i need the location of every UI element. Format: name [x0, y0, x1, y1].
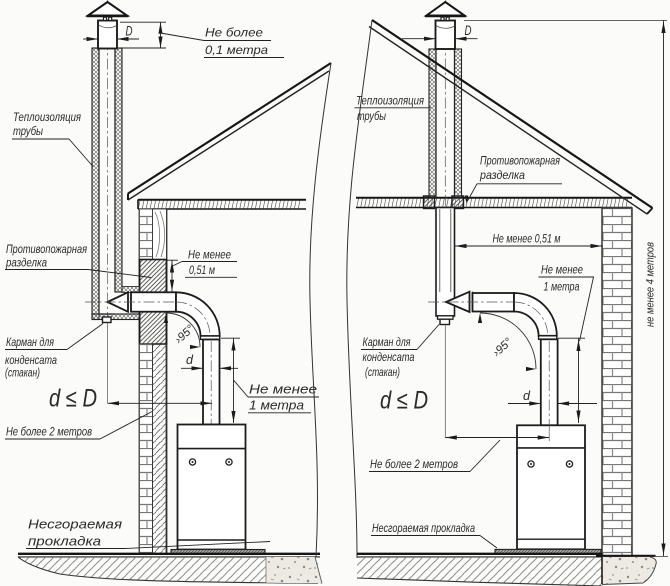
svg-text:D: D [126, 24, 133, 39]
svg-text:прокладка: прокладка [28, 534, 101, 549]
svg-text:Не менее 0,51 м: Не менее 0,51 м [493, 231, 561, 245]
svg-text:не менее 4 метров: не менее 4 метров [645, 242, 657, 327]
svg-text:Карман для: Карман для [6, 335, 55, 349]
svg-text:d: d [186, 352, 194, 367]
svg-text:Не менее: Не менее [188, 248, 231, 262]
svg-text:Не более: Не более [205, 26, 263, 40]
svg-text:d: d [523, 388, 531, 403]
svg-text:(стакан): (стакан) [5, 366, 40, 380]
svg-text:(стакан): (стакан) [365, 365, 400, 379]
svg-text:Противопожарная: Противопожарная [480, 154, 561, 168]
svg-text:›95°: ›95° [491, 336, 515, 359]
svg-text:0,1 метра: 0,1 метра [205, 43, 268, 57]
svg-text:Теплоизоляция: Теплоизоляция [13, 110, 82, 124]
svg-text:1 метра: 1 метра [249, 398, 304, 413]
svg-text:Несгораемая: Несгораемая [28, 517, 122, 532]
svg-text:разделка: разделка [479, 168, 525, 182]
svg-text:1 метра: 1 метра [544, 280, 580, 294]
svg-text:Не более 2 метров: Не более 2 метров [6, 425, 92, 439]
svg-text:d ≤ D: d ≤ D [49, 385, 97, 413]
svg-text:Карман для: Карман для [363, 335, 412, 349]
svg-text:конденсата: конденсата [363, 350, 415, 364]
svg-text:разделка: разделка [5, 256, 47, 270]
svg-text:трубы: трубы [13, 124, 43, 138]
svg-text:Несгораемая прокладка: Несгораемая прокладка [372, 521, 475, 535]
svg-text:Не менее: Не менее [249, 382, 317, 397]
svg-text:Теплоизоляция: Теплоизоляция [356, 94, 425, 108]
svg-text:0,51 м: 0,51 м [189, 263, 215, 277]
svg-text:D: D [465, 23, 472, 38]
svg-text:трубы: трубы [357, 109, 386, 123]
svg-text:d ≤ D: d ≤ D [380, 387, 428, 415]
svg-text:Не менее: Не менее [541, 263, 583, 277]
svg-text:Противопожарная: Противопожарная [6, 242, 88, 256]
svg-text:Не более 2 метров: Не более 2 метров [370, 457, 458, 471]
